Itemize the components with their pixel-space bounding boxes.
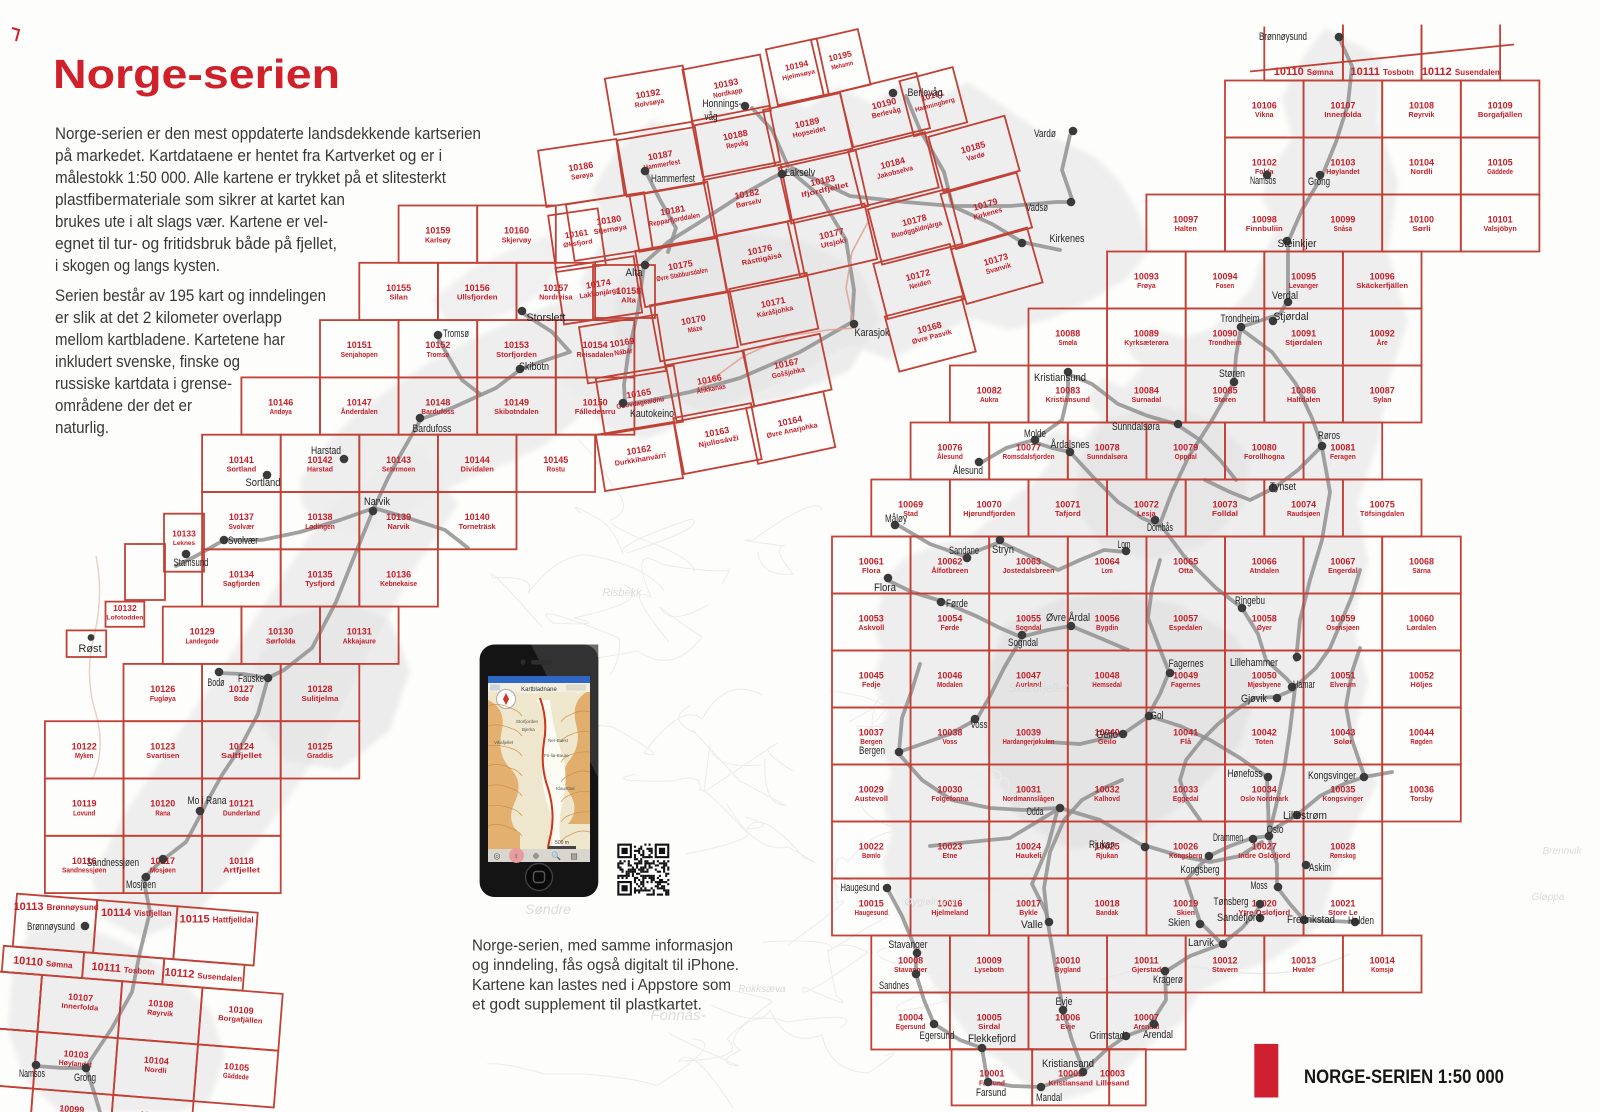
svg-text:10076: 10076 <box>937 443 962 453</box>
svg-text:Skäckerfjällen: Skäckerfjällen <box>1356 281 1408 290</box>
svg-text:10029: 10029 <box>859 785 884 795</box>
svg-text:Fedje: Fedje <box>862 680 881 689</box>
svg-text:Høylandet: Høylandet <box>1326 167 1360 176</box>
svg-text:10045: 10045 <box>859 671 884 681</box>
svg-text:Särna: Särna <box>1412 566 1431 575</box>
svg-text:10068: 10068 <box>1409 557 1434 567</box>
svg-text:10124: 10124 <box>229 741 254 751</box>
svg-text:10006: 10006 <box>1055 1013 1080 1023</box>
svg-text:10078: 10078 <box>1095 443 1120 453</box>
svg-text:Romsdalsfjorden: Romsdalsfjorden <box>1003 452 1055 461</box>
svg-text:Sortland: Sortland <box>227 465 257 474</box>
svg-text:Hjelmeland: Hjelmeland <box>931 908 968 917</box>
svg-text:10127: 10127 <box>229 684 254 694</box>
svg-text:Rana: Rana <box>155 808 171 817</box>
svg-text:10037: 10037 <box>859 728 884 738</box>
svg-text:10081: 10081 <box>1330 443 1355 453</box>
svg-text:Svolvær: Svolvær <box>228 522 254 531</box>
svg-text:Rjukan: Rjukan <box>1089 839 1115 851</box>
svg-text:Narvik: Narvik <box>388 522 410 531</box>
svg-text:Egersund: Egersund <box>920 1030 955 1042</box>
svg-text:Sørfolda: Sørfolda <box>266 636 297 645</box>
svg-text:10010: 10010 <box>1055 956 1080 966</box>
svg-text:10152: 10152 <box>425 340 450 350</box>
svg-text:10093: 10093 <box>1134 272 1159 282</box>
svg-text:Skibotn: Skibotn <box>519 361 549 373</box>
svg-text:Fugløya: Fugløya <box>150 694 177 703</box>
svg-text:10133: 10133 <box>172 529 196 539</box>
svg-text:10108: 10108 <box>1409 101 1434 111</box>
svg-text:10051: 10051 <box>1330 671 1355 681</box>
svg-text:Etne: Etne <box>943 851 958 860</box>
svg-text:Tromsø: Tromsø <box>443 328 469 340</box>
svg-text:10005: 10005 <box>977 1013 1002 1023</box>
svg-text:Kristiansand: Kristiansand <box>1042 1058 1094 1070</box>
svg-text:10030: 10030 <box>937 785 962 795</box>
svg-text:Jostedalsbreen: Jostedalsbreen <box>1003 566 1055 575</box>
svg-text:Landegode: Landegode <box>185 636 218 645</box>
svg-text:10103: 10103 <box>1330 158 1355 168</box>
svg-text:Senjahopen: Senjahopen <box>341 350 378 359</box>
svg-text:10143: 10143 <box>386 455 411 465</box>
svg-text:Kongsvinger: Kongsvinger <box>1308 770 1356 782</box>
svg-text:Ner-Bakst: Ner-Bakst <box>548 738 569 743</box>
svg-text:Øyer: Øyer <box>1257 623 1272 632</box>
svg-text:10048: 10048 <box>1095 671 1120 681</box>
svg-text:10083: 10083 <box>1055 386 1080 396</box>
svg-text:Namsos: Namsos <box>1250 175 1276 187</box>
svg-text:Folldal: Folldal <box>1212 509 1238 518</box>
svg-text:Smøla: Smøla <box>1059 338 1078 347</box>
svg-text:Rostu: Rostu <box>547 465 566 474</box>
svg-text:Sagfjorden: Sagfjorden <box>223 579 260 588</box>
svg-text:Lakselv: Lakselv <box>785 167 815 179</box>
svg-text:10062: 10062 <box>937 557 962 567</box>
svg-text:10065: 10065 <box>1173 557 1198 567</box>
svg-text:Kristiansund: Kristiansund <box>1046 395 1090 404</box>
svg-text:Askvoll: Askvoll <box>858 623 884 632</box>
svg-text:10134: 10134 <box>229 569 254 579</box>
svg-text:Lørdalen: Lørdalen <box>1407 623 1437 632</box>
svg-text:10113 Brønnøysund: 10113 Brønnøysund <box>14 901 99 913</box>
svg-text:Førde: Førde <box>946 598 968 610</box>
svg-text:10035: 10035 <box>1330 785 1355 795</box>
svg-text:Vardø: Vardø <box>1034 128 1056 140</box>
svg-text:10054: 10054 <box>937 614 962 624</box>
svg-text:Harstad: Harstad <box>307 465 333 474</box>
svg-text:Flora: Flora <box>874 582 897 594</box>
svg-text:10057: 10057 <box>1173 614 1198 624</box>
svg-text:Sulitjelma: Sulitjelma <box>302 694 340 703</box>
svg-text:Bygland: Bygland <box>1055 965 1081 974</box>
svg-text:10085: 10085 <box>1212 386 1237 396</box>
svg-text:Stjørdalen: Stjørdalen <box>1285 338 1322 347</box>
svg-text:10131: 10131 <box>347 627 372 637</box>
svg-text:Kristiansund: Kristiansund <box>1034 372 1086 384</box>
svg-text:Tysfjord: Tysfjord <box>305 579 335 588</box>
svg-text:Kongsberg: Kongsberg <box>1169 851 1202 860</box>
svg-text:Fri-lia-Baure: Fri-lia-Baure <box>544 753 569 758</box>
svg-text:10073: 10073 <box>1212 500 1237 510</box>
svg-text:Leknes: Leknes <box>173 540 196 547</box>
svg-text:10089: 10089 <box>1134 329 1159 339</box>
svg-text:10155: 10155 <box>386 283 411 293</box>
svg-text:Sandefjord: Sandefjord <box>1217 912 1261 924</box>
svg-text:Honnings-: Honnings- <box>703 98 742 110</box>
svg-text:10101: 10101 <box>1488 215 1513 225</box>
svg-text:Mosjøen: Mosjøen <box>126 879 156 891</box>
svg-text:10049: 10049 <box>1173 671 1198 681</box>
svg-text:Brønnøysund: Brønnøysund <box>1259 31 1307 43</box>
svg-text:Bodø: Bodø <box>234 694 249 703</box>
svg-text:10056: 10056 <box>1095 614 1120 624</box>
svg-text:10043: 10043 <box>1330 728 1355 738</box>
svg-text:Skien: Skien <box>1176 908 1195 917</box>
svg-text:Ringebu: Ringebu <box>1235 595 1265 607</box>
svg-text:10145: 10145 <box>543 455 568 465</box>
svg-text:10104: 10104 <box>1409 158 1434 168</box>
svg-text:Tønsberg: Tønsberg <box>1214 896 1249 908</box>
svg-text:Odda: Odda <box>1027 806 1045 818</box>
svg-text:Haugesund: Haugesund <box>855 908 888 917</box>
svg-text:10080: 10080 <box>1252 443 1277 453</box>
svg-text:10092: 10092 <box>1370 329 1395 339</box>
svg-text:Bømlo: Bømlo <box>862 851 881 860</box>
svg-text:10095: 10095 <box>1291 272 1316 282</box>
svg-text:Saltfjellet: Saltfjellet <box>221 751 262 760</box>
svg-text:10150: 10150 <box>583 398 608 408</box>
svg-text:10115 Hattfjelldal: 10115 Hattfjelldal <box>180 914 254 926</box>
svg-text:Sogndal: Sogndal <box>1008 637 1038 649</box>
svg-text:10084: 10084 <box>1134 386 1159 396</box>
svg-text:Sandnes: Sandnes <box>879 980 909 992</box>
svg-text:🔍: 🔍 <box>551 851 561 861</box>
svg-text:10047: 10047 <box>1016 671 1041 681</box>
svg-text:Hemsedal: Hemsedal <box>1092 680 1122 689</box>
svg-text:Trondheim: Trondheim <box>1208 338 1241 347</box>
svg-text:Lysebotn: Lysebotn <box>974 965 1004 974</box>
svg-text:10102: 10102 <box>1252 158 1277 168</box>
svg-text:Farsund: Farsund <box>976 1087 1006 1099</box>
svg-text:Tromsø: Tromsø <box>427 350 450 359</box>
svg-text:10046: 10046 <box>937 671 962 681</box>
svg-text:10154: 10154 <box>583 340 608 350</box>
svg-text:Surnadal: Surnadal <box>1132 395 1162 404</box>
svg-text:10041: 10041 <box>1173 728 1198 738</box>
svg-text:10130: 10130 <box>268 627 293 637</box>
svg-text:10012: 10012 <box>1212 956 1237 966</box>
svg-text:10019: 10019 <box>1173 899 1198 909</box>
svg-text:10139: 10139 <box>386 512 411 522</box>
svg-text:Sandnessjøen: Sandnessjøen <box>87 857 139 869</box>
svg-text:Berlevåg: Berlevåg <box>908 87 943 99</box>
svg-text:10050: 10050 <box>1252 671 1277 681</box>
svg-text:Komsjø: Komsjø <box>1371 965 1394 974</box>
svg-text:Aukra: Aukra <box>980 395 999 404</box>
svg-text:10136: 10136 <box>386 569 411 579</box>
svg-text:10015: 10015 <box>859 899 884 909</box>
svg-text:Hammerfest: Hammerfest <box>651 173 695 185</box>
svg-text:Feragen: Feragen <box>1330 452 1356 461</box>
svg-text:Stjørdal: Stjørdal <box>1274 311 1309 323</box>
svg-text:Oppdal: Oppdal <box>1175 452 1197 461</box>
svg-text:10160: 10160 <box>504 226 529 236</box>
svg-text:10027: 10027 <box>1252 842 1277 852</box>
svg-text:Forollhogna: Forollhogna <box>1244 452 1286 461</box>
svg-text:Rokksæva: Rokksæva <box>738 984 786 995</box>
svg-text:10060: 10060 <box>1409 614 1434 624</box>
svg-text:Svolvær: Svolvær <box>228 535 258 547</box>
svg-text:Sunndalsøra: Sunndalsøra <box>1087 452 1129 461</box>
svg-text:Kyrksæterøra: Kyrksæterøra <box>1124 338 1169 347</box>
svg-text:500 m: 500 m <box>555 840 569 846</box>
svg-text:Kartbladnane: Kartbladnane <box>521 687 557 693</box>
svg-text:10140: 10140 <box>465 512 490 522</box>
svg-text:10099: 10099 <box>59 1103 85 1112</box>
svg-text:Sortland: Sortland <box>246 477 281 489</box>
svg-text:Snåsa: Snåsa <box>1334 224 1353 233</box>
svg-text:Nordli: Nordli <box>1410 167 1432 176</box>
svg-text:10039: 10039 <box>1016 728 1041 738</box>
svg-text:10157: 10157 <box>543 283 568 293</box>
svg-text:Austevoll: Austevoll <box>855 794 888 803</box>
svg-text:Moss: Moss <box>1251 880 1268 892</box>
svg-text:Gjerstad: Gjerstad <box>1132 965 1162 974</box>
svg-text:10151: 10151 <box>347 340 372 350</box>
svg-text:Brønnøysund: Brønnøysund <box>27 921 75 933</box>
svg-text:10087: 10087 <box>1370 386 1395 396</box>
svg-text:10100: 10100 <box>1409 215 1434 225</box>
svg-text:10126: 10126 <box>150 684 175 694</box>
svg-text:10077: 10077 <box>1016 443 1041 453</box>
svg-text:Atndalen: Atndalen <box>1250 566 1280 575</box>
svg-text:Dividalen: Dividalen <box>461 465 494 474</box>
svg-text:10028: 10028 <box>1330 842 1355 852</box>
svg-text:Lovund: Lovund <box>73 808 95 817</box>
svg-text:Fálledearru: Fálledearru <box>575 407 616 416</box>
svg-text:10034: 10034 <box>1252 785 1277 795</box>
svg-text:10036: 10036 <box>1409 785 1434 795</box>
svg-text:Grimstad: Grimstad <box>1090 1030 1125 1042</box>
svg-text:Storfjorden: Storfjorden <box>516 719 539 724</box>
svg-text:10061: 10061 <box>859 557 884 567</box>
svg-text:Valsjöbyn: Valsjöbyn <box>1483 224 1516 233</box>
svg-text:Røyrvik: Røyrvik <box>1409 110 1435 119</box>
svg-text:Hamar: Hamar <box>1293 679 1315 691</box>
svg-text:Skjervøy: Skjervøy <box>502 235 532 244</box>
svg-text:10094: 10094 <box>1212 272 1237 282</box>
svg-text:Sylan: Sylan <box>1373 395 1392 404</box>
svg-text:Bjerka: Bjerka <box>522 727 535 732</box>
svg-text:Bardufoss: Bardufoss <box>413 423 452 435</box>
svg-text:Oslo: Oslo <box>1267 824 1284 836</box>
svg-text:Bandak: Bandak <box>1096 908 1118 917</box>
svg-text:◎: ◎ <box>494 852 501 861</box>
svg-text:10098: 10098 <box>1252 215 1277 225</box>
svg-text:Måløy: Måløy <box>885 513 907 525</box>
svg-text:Grong: Grong <box>1308 176 1330 188</box>
svg-text:Førde: Førde <box>941 623 960 632</box>
svg-text:Skibotndalen: Skibotndalen <box>494 407 538 416</box>
svg-text:Sirdal: Sirdal <box>978 1022 1000 1031</box>
svg-text:Haltdalen: Haltdalen <box>1287 395 1320 404</box>
svg-text:Indre Oslofjord: Indre Oslofjord <box>1238 851 1290 860</box>
svg-text:10052: 10052 <box>1409 671 1434 681</box>
svg-text:Oslo Nordmark: Oslo Nordmark <box>1240 794 1288 803</box>
svg-text:Voss: Voss <box>971 719 988 731</box>
svg-text:Vikafjellet: Vikafjellet <box>494 740 514 745</box>
svg-text:Andøya: Andøya <box>270 407 293 416</box>
svg-text:Bykle: Bykle <box>1019 908 1038 917</box>
svg-text:Skien: Skien <box>1168 917 1190 929</box>
svg-text:Mo i Rana: Mo i Rana <box>188 795 228 807</box>
svg-text:Engerdal: Engerdal <box>1328 566 1358 575</box>
svg-text:Rjukan: Rjukan <box>1096 851 1118 860</box>
svg-text:Töfsingdalen: Töfsingdalen <box>1360 509 1404 518</box>
svg-text:10067: 10067 <box>1330 557 1355 567</box>
svg-text:10004: 10004 <box>898 1013 923 1023</box>
svg-text:Tynset: Tynset <box>1270 481 1296 493</box>
svg-text:10055: 10055 <box>1016 614 1041 624</box>
svg-text:Kebnekaise: Kebnekaise <box>380 579 417 588</box>
svg-text:10122: 10122 <box>72 741 97 751</box>
svg-text:Alta: Alta <box>621 296 637 305</box>
svg-text:10153: 10153 <box>504 340 529 350</box>
svg-text:10009: 10009 <box>977 956 1002 966</box>
svg-text:10021: 10021 <box>1330 899 1355 909</box>
svg-text:10003: 10003 <box>1100 1069 1125 1079</box>
svg-text:10024: 10024 <box>1016 842 1041 852</box>
svg-text:10032: 10032 <box>1095 785 1120 795</box>
svg-text:Lom: Lom <box>1102 566 1113 575</box>
svg-text:Steinkjer: Steinkjer <box>1278 238 1317 250</box>
svg-text:10042: 10042 <box>1252 728 1277 738</box>
svg-text:Lillesand: Lillesand <box>1096 1078 1129 1087</box>
svg-text:Trondheim: Trondheim <box>1221 313 1260 325</box>
svg-text:10112 Susendalen: 10112 Susendalen <box>1422 66 1500 78</box>
svg-text:Flora: Flora <box>862 566 882 575</box>
svg-text:NORGE-SERIEN 1:50 000: NORGE-SERIEN 1:50 000 <box>1304 1066 1504 1088</box>
svg-text:Larvik: Larvik <box>1188 937 1214 949</box>
svg-text:Ullsfjorden: Ullsfjorden <box>457 293 498 302</box>
svg-text:10120: 10120 <box>150 799 175 809</box>
svg-text:Elverum: Elverum <box>1330 680 1356 689</box>
svg-text:10125: 10125 <box>307 741 332 751</box>
svg-text:Borgafjällen: Borgafjällen <box>1478 110 1522 119</box>
svg-text:Støren: Støren <box>1219 368 1245 380</box>
svg-text:10158: 10158 <box>616 286 641 296</box>
svg-text:10137: 10137 <box>229 512 254 522</box>
svg-text:Røst: Røst <box>78 643 101 655</box>
svg-text:Lofotodden: Lofotodden <box>106 615 143 622</box>
svg-text:Geilo: Geilo <box>1096 729 1118 741</box>
svg-text:Sogndal: Sogndal <box>1016 623 1042 632</box>
svg-text:Tafjord: Tafjord <box>1055 509 1081 518</box>
svg-text:Stavanger: Stavanger <box>894 965 927 974</box>
svg-text:10159: 10159 <box>425 226 450 236</box>
svg-text:Graddis: Graddis <box>307 751 333 760</box>
svg-text:10106: 10106 <box>1252 101 1277 111</box>
svg-text:Alta: Alta <box>626 267 644 279</box>
svg-text:10086: 10086 <box>1291 386 1316 396</box>
svg-text:Narvik: Narvik <box>364 496 390 508</box>
svg-text:Ålesund: Ålesund <box>953 464 983 477</box>
svg-text:Rømskog: Rømskog <box>1330 851 1356 860</box>
svg-text:10121: 10121 <box>229 799 254 809</box>
svg-text:våg: våg <box>705 111 718 123</box>
svg-text:10079: 10079 <box>1173 443 1198 453</box>
svg-text:Evje: Evje <box>1056 996 1073 1008</box>
svg-text:♀: ♀ <box>513 852 519 861</box>
svg-text:Stavern: Stavern <box>1212 965 1238 974</box>
svg-text:Drammen: Drammen <box>1213 832 1243 844</box>
svg-text:10141: 10141 <box>229 455 254 465</box>
svg-text:Myken: Myken <box>75 751 94 760</box>
svg-text:10044: 10044 <box>1409 728 1434 738</box>
svg-text:Gäddede: Gäddede <box>1487 167 1513 176</box>
svg-text:Solør: Solør <box>1334 737 1353 746</box>
svg-text:Vadsø: Vadsø <box>1026 202 1048 214</box>
svg-text:Ålesund: Ålesund <box>937 452 963 461</box>
svg-text:Nordreisa: Nordreisa <box>539 293 573 302</box>
svg-text:Kongsberg: Kongsberg <box>1181 864 1220 876</box>
svg-text:10074: 10074 <box>1291 500 1316 510</box>
svg-text:Røgden: Røgden <box>1410 737 1432 746</box>
svg-text:Höljes: Höljes <box>1410 680 1432 689</box>
svg-text:Mosjøen: Mosjøen <box>150 866 176 875</box>
svg-text:Folgefonna: Folgefonna <box>931 794 969 803</box>
svg-text:Støren: Støren <box>1214 395 1236 404</box>
svg-text:10097: 10097 <box>1173 215 1198 225</box>
svg-text:Fauske: Fauske <box>238 673 264 685</box>
svg-text:Kragerø: Kragerø <box>1153 974 1183 986</box>
svg-text:Kristiansand: Kristiansand <box>1049 1078 1093 1087</box>
svg-text:Voss: Voss <box>943 737 958 746</box>
svg-text:Karasjok: Karasjok <box>855 327 890 339</box>
svg-text:Storslett: Storslett <box>527 312 566 324</box>
svg-text:Hvaler: Hvaler <box>1293 965 1315 974</box>
svg-text:Sørli: Sørli <box>1412 224 1431 233</box>
svg-text:10063: 10063 <box>1016 557 1041 567</box>
svg-text:10031: 10031 <box>1016 785 1041 795</box>
svg-text:Otta: Otta <box>1178 566 1194 575</box>
svg-text:Torneträsk: Torneträsk <box>459 522 496 531</box>
svg-text:Verdal: Verdal <box>1272 290 1298 302</box>
svg-text:10017: 10017 <box>1016 899 1041 909</box>
svg-text:Osensjøen: Osensjøen <box>1326 623 1359 632</box>
svg-text:Storfjorden: Storfjorden <box>496 350 537 359</box>
svg-text:Haukeli: Haukeli <box>1016 851 1042 860</box>
svg-text:10023: 10023 <box>937 842 962 852</box>
svg-text:10138: 10138 <box>307 512 332 522</box>
svg-text:Artfjellet: Artfjellet <box>223 866 261 875</box>
svg-text:10123: 10123 <box>150 741 175 751</box>
svg-text:10058: 10058 <box>1252 614 1277 624</box>
svg-text:10114 Vistfjellan: 10114 Vistfjellan <box>101 907 172 919</box>
svg-text:Torsby: Torsby <box>1410 794 1432 803</box>
svg-text:Kalhovd: Kalhovd <box>1094 794 1120 803</box>
svg-text:Arendal: Arendal <box>1143 1029 1173 1041</box>
svg-text:10064: 10064 <box>1095 557 1120 567</box>
svg-text:Karlsøy: Karlsøy <box>425 235 451 244</box>
svg-text:10072: 10072 <box>1134 500 1159 510</box>
svg-text:Hønefoss: Hønefoss <box>1228 768 1263 780</box>
svg-text:Toten: Toten <box>1255 737 1274 746</box>
svg-text:Evje: Evje <box>1060 1022 1075 1031</box>
svg-text:10111 Tosbotn: 10111 Tosbotn <box>1351 66 1415 78</box>
svg-text:10090: 10090 <box>1212 329 1237 339</box>
svg-text:Hardangerjøkulen: Hardangerjøkulen <box>1003 737 1055 746</box>
